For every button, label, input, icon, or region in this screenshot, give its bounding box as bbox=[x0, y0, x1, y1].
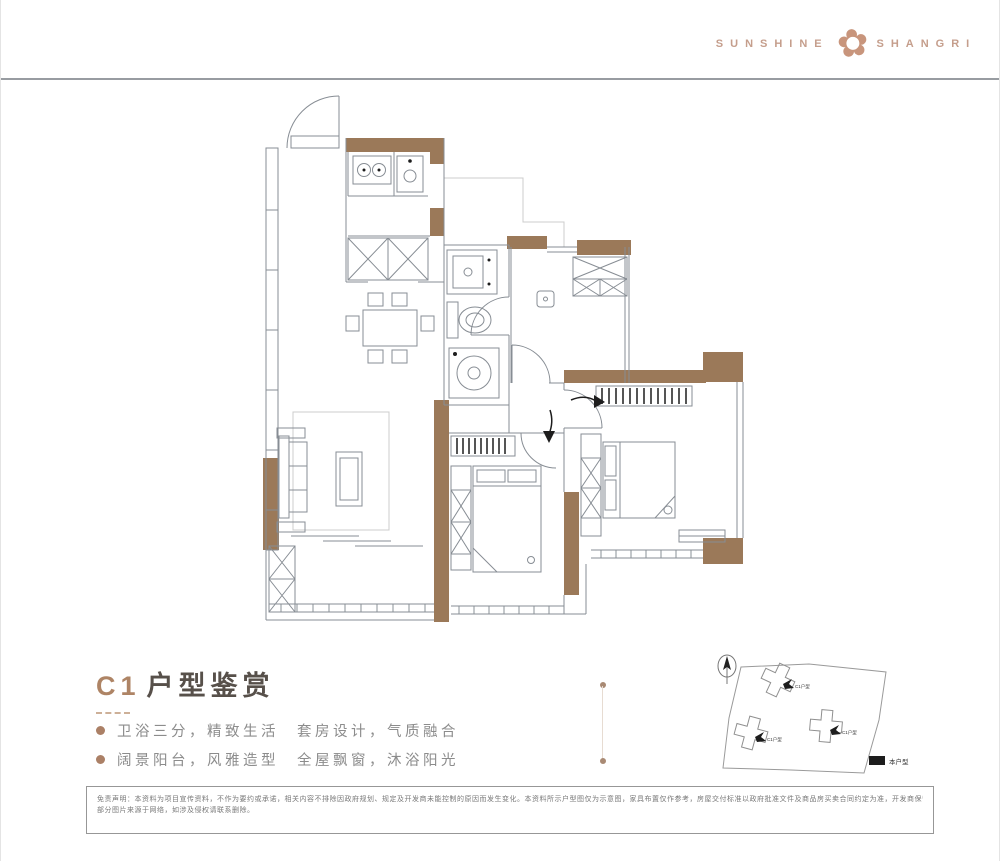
disclaimer-box: 免责声明：本资料为项目宣传资料，不作为要约或承诺，相关内容不排除因政府规划、规定… bbox=[86, 786, 934, 834]
logo-text-right: SHANGRI bbox=[876, 38, 976, 50]
dining-table bbox=[363, 310, 417, 346]
entry-door-arc bbox=[287, 96, 339, 148]
kitchen bbox=[346, 138, 444, 282]
study-room bbox=[511, 247, 629, 383]
bathroom bbox=[444, 245, 509, 433]
feature-text: 阔景阳台，风雅造型 全屋飘窗，沐浴阳光 bbox=[117, 749, 459, 770]
disclaimer-line-1: 免责声明：本资料为项目宣传资料，不作为要约或承诺，相关内容不排除因政府规划、规定… bbox=[97, 794, 923, 805]
buildings bbox=[731, 659, 843, 753]
bedroom-2 bbox=[449, 433, 564, 614]
side-table bbox=[537, 291, 554, 307]
balcony-slider bbox=[291, 536, 423, 546]
title-underline bbox=[96, 712, 130, 714]
title-text: 户型鉴赏 bbox=[147, 671, 275, 701]
bullet-dot-icon bbox=[96, 726, 105, 735]
feature-item: 阔景阳台，风雅造型 全屋飘窗，沐浴阳光 bbox=[96, 745, 459, 774]
building-label: C1户型 bbox=[795, 683, 810, 690]
entry bbox=[287, 96, 339, 148]
page-title: C1户型鉴赏 bbox=[96, 664, 275, 703]
titleblock: C1户型鉴赏 bbox=[96, 664, 275, 714]
direction-arrows bbox=[543, 395, 605, 443]
disclaimer-line-2: 部分图片来源于网络，如涉及侵权请联系删除。 bbox=[97, 805, 923, 816]
toilet bbox=[447, 302, 458, 338]
legend-swatch bbox=[869, 756, 885, 765]
site-boundary bbox=[723, 664, 886, 773]
building-label: C1户型 bbox=[767, 736, 782, 743]
logo-text-left: SUNSHINE bbox=[716, 38, 829, 50]
feature-item: 卫浴三分，精致生活 套房设计，气质融合 bbox=[96, 716, 459, 745]
bedroom-1 bbox=[564, 382, 743, 614]
balcony bbox=[266, 546, 434, 620]
compass-icon bbox=[718, 655, 736, 684]
floorplan-svg bbox=[251, 90, 751, 635]
section-divider bbox=[600, 682, 606, 764]
flower-icon: ✿ bbox=[834, 23, 871, 65]
brand-logo: SUNSHINE ✿ SHANGRI bbox=[726, 18, 966, 70]
brochure-page: SUNSHINE ✿ SHANGRI bbox=[0, 0, 1000, 861]
study-door-arc bbox=[512, 345, 550, 383]
bullet-dot-icon bbox=[96, 755, 105, 764]
building-label: C1户型 bbox=[842, 729, 857, 736]
unit-markers: C1户型 C1户型 C1户型 bbox=[755, 679, 857, 743]
living-dining bbox=[277, 293, 434, 546]
feature-list: 卫浴三分，精致生活 套房设计，气质融合 阔景阳台，风雅造型 全屋飘窗，沐浴阳光 bbox=[96, 716, 459, 774]
feature-text: 卫浴三分，精致生活 套房设计，气质融合 bbox=[117, 720, 459, 741]
legend-label: 本户型 bbox=[889, 757, 909, 766]
sitemap-svg: C1户型 C1户型 C1户型 本户型 bbox=[691, 640, 951, 790]
unit-code: C1 bbox=[96, 671, 141, 701]
header: SUNSHINE ✿ SHANGRI bbox=[1, 0, 999, 80]
sofa bbox=[279, 436, 289, 518]
sitemap-legend: 本户型 bbox=[869, 756, 909, 766]
